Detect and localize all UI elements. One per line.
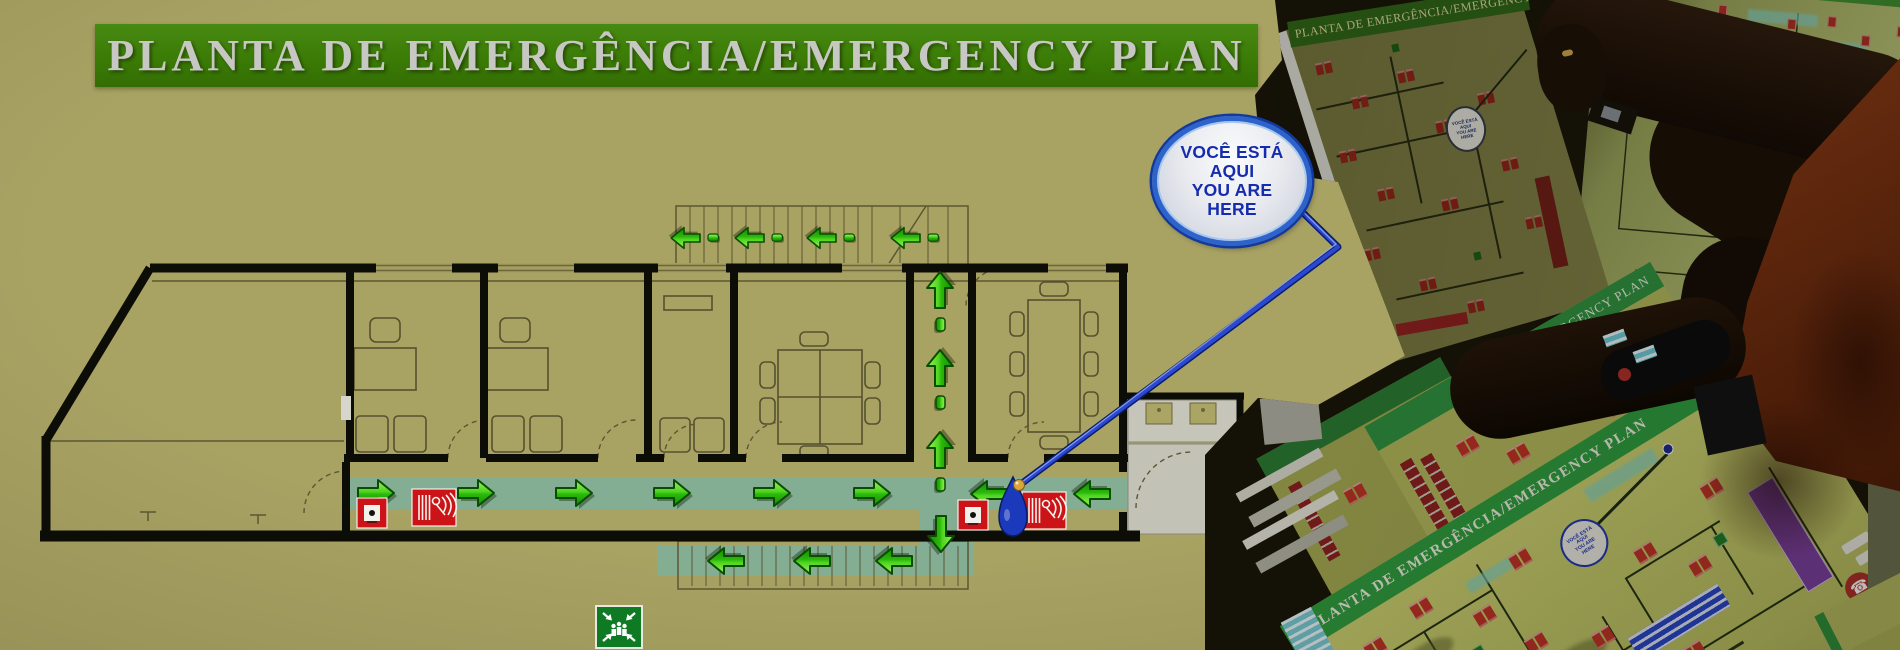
door-leaf: [341, 396, 351, 420]
fire-hose-reel-icon: [412, 489, 456, 526]
sink: [1146, 403, 1172, 424]
door-arcs: [304, 268, 1192, 513]
title-bar: PLANTA DE EMERGÊNCIA/EMERGENCY PLAN: [95, 24, 1258, 87]
assembly-point-icon: [596, 606, 642, 648]
fire-alarm-call-point-icon: [357, 498, 387, 528]
furniture: [354, 282, 1098, 457]
sink: [1190, 403, 1216, 424]
page-title: PLANTA DE EMERGÊNCIA/EMERGENCY PLAN: [107, 30, 1246, 81]
you-are-here-bubble: VOCÊ ESTÁ AQUI YOU ARE HERE: [1152, 116, 1312, 246]
you-are-here-bubble-text: VOCÊ ESTÁ AQUI YOU ARE HERE: [1181, 143, 1284, 220]
emergency-plan-banner: PLANTA DE EMERGÊNCIA/EMERGENCY PLAN PLAN: [0, 0, 1900, 650]
fire-alarm-call-point-icon: [958, 500, 988, 530]
fire-hose-reel-icon: [1022, 492, 1066, 529]
